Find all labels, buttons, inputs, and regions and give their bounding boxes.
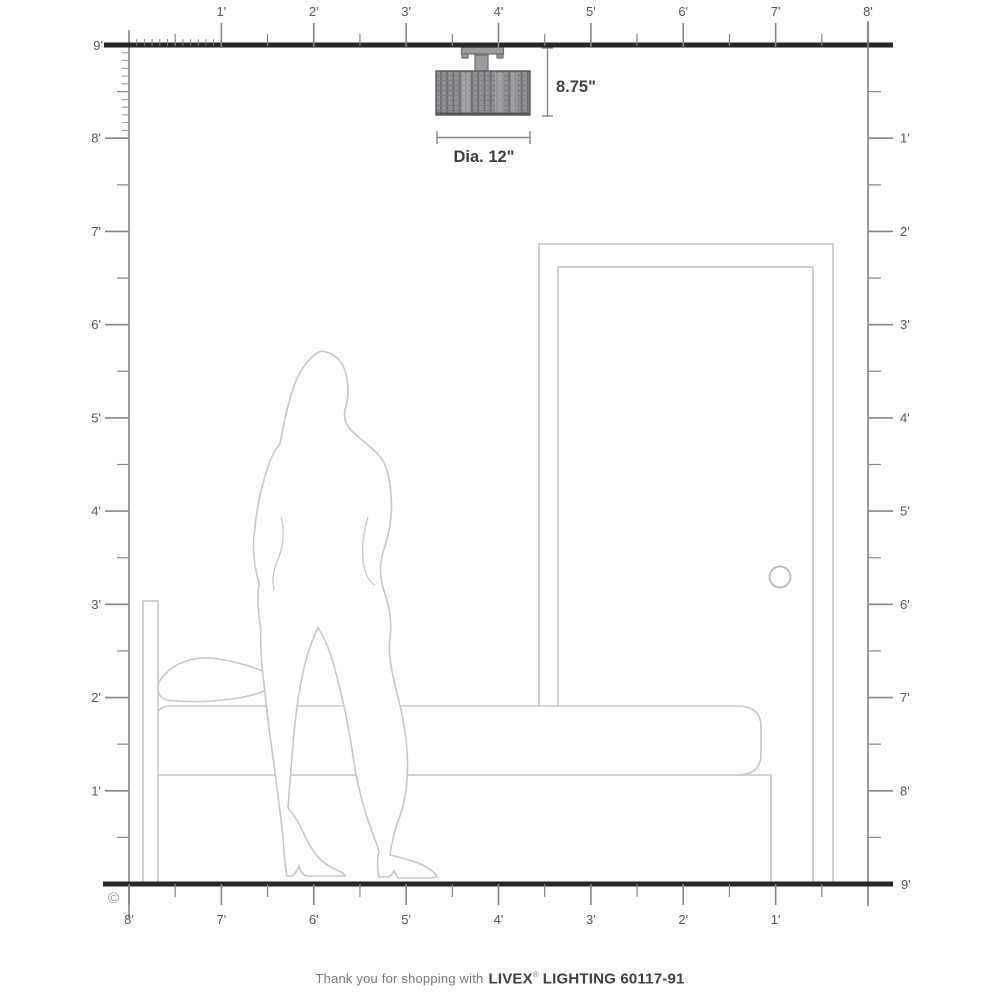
tick-label: 6' <box>91 317 101 332</box>
right-ruler: 1'2'3'4'5'6'7'8' <box>868 92 910 838</box>
tick-label: 5' <box>900 504 910 519</box>
tick-label: 6' <box>309 912 319 927</box>
bed-base <box>158 775 771 883</box>
tick-label: 8' <box>900 783 910 798</box>
tick-label: 8' <box>91 131 101 146</box>
tick-label: 1' <box>900 131 910 146</box>
room-scale-drawing: 8.75" Dia. 12" 9' 9' 1'2'3'4'5'6'7'8' 8'… <box>0 0 1000 1000</box>
tick-label: 8' <box>124 912 134 927</box>
tick-label: 4' <box>900 410 910 425</box>
fixture-canopy <box>462 47 504 54</box>
diameter-dimension-label: Dia. 12" <box>453 148 514 166</box>
floor-height-label: 9' <box>901 877 911 892</box>
tick-label: 6' <box>900 597 910 612</box>
registered-mark: ® <box>533 970 539 979</box>
tick-label: 5' <box>91 410 101 425</box>
product-dimension-diagram: 8.75" Dia. 12" 9' 9' 1'2'3'4'5'6'7'8' 8'… <box>0 0 1000 1000</box>
shade-highlight <box>462 73 470 114</box>
copyright-symbol: © <box>108 890 119 907</box>
tick-label: 5' <box>586 4 596 19</box>
height-dimension: 8.75" <box>542 48 596 116</box>
tick-label: 1' <box>217 4 227 19</box>
tick-label: 7' <box>91 224 101 239</box>
bottom-ruler: 8'7'6'5'4'3'2'1' <box>124 884 822 927</box>
caption: Thank you for shopping withLIVEX®LIGHTIN… <box>0 970 1000 988</box>
tick-label: 2' <box>900 224 910 239</box>
caption-prefix: Thank you for shopping with <box>315 971 483 986</box>
mattress <box>157 706 761 775</box>
shade-highlight <box>511 73 517 114</box>
fixture-stem <box>475 55 488 72</box>
height-dimension-label: 8.75" <box>556 78 596 96</box>
ceiling-height-label: 9' <box>93 38 103 53</box>
tick-label: 4' <box>91 504 101 519</box>
tick-label: 6' <box>678 4 688 19</box>
diameter-dimension: Dia. 12" <box>437 131 530 166</box>
left-ruler: 8'7'6'5'4'3'2'1' <box>91 53 129 838</box>
tick-label: 7' <box>771 4 781 19</box>
tick-label: 2' <box>678 912 688 927</box>
brand-name: LIVEX <box>488 970 532 987</box>
top-ruler: 1'2'3'4'5'6'7'8' <box>137 4 873 48</box>
tick-label: 8' <box>863 4 873 19</box>
door-knob <box>770 567 791 588</box>
tick-label: 4' <box>494 4 504 19</box>
tick-label: 3' <box>401 4 411 19</box>
fixture-canopy-trim-left <box>462 54 468 58</box>
tick-label: 7' <box>217 912 227 927</box>
tick-label: 3' <box>91 597 101 612</box>
tick-label: 2' <box>91 690 101 705</box>
product-code: LIGHTING 60117-91 <box>543 970 685 987</box>
tick-label: 3' <box>586 912 596 927</box>
ceiling-light-fixture <box>436 47 530 115</box>
tick-label: 3' <box>900 317 910 332</box>
tick-label: 1' <box>771 912 781 927</box>
shade-highlight <box>495 73 504 114</box>
tick-label: 5' <box>401 912 411 927</box>
tick-label: 4' <box>494 912 504 927</box>
pillow <box>158 658 272 702</box>
tick-label: 1' <box>91 783 101 798</box>
headboard <box>143 601 158 883</box>
fixture-canopy-trim-right <box>497 54 503 58</box>
tick-label: 2' <box>309 4 319 19</box>
tick-label: 7' <box>900 690 910 705</box>
